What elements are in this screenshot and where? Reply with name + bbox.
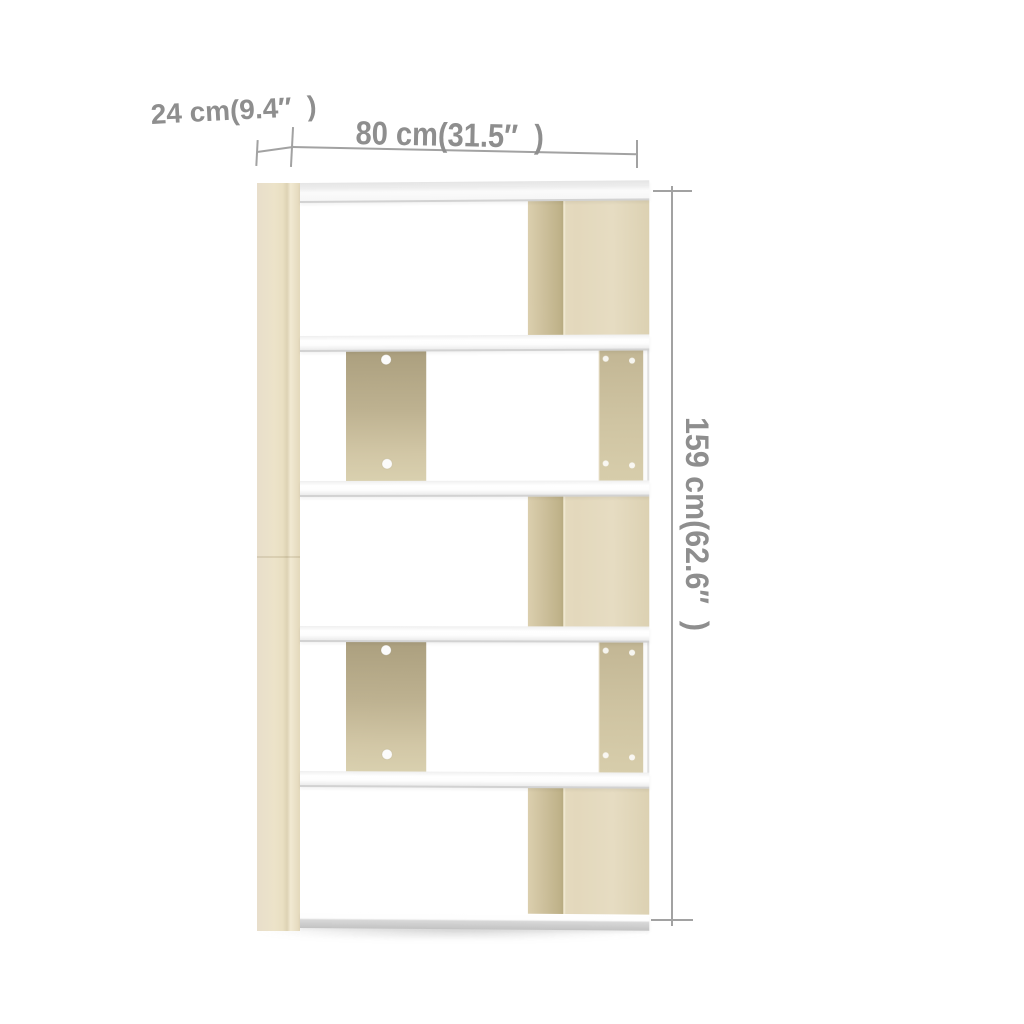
height-dimension-line (671, 186, 673, 926)
oak-block-side-face (528, 495, 565, 627)
height-dimension-label: 159 cm(62.6″ ) (681, 417, 713, 631)
screw-cap (381, 645, 391, 655)
height-dimension-tick-top (653, 190, 692, 192)
screw-cap (382, 749, 392, 759)
shelf-board-1 (300, 334, 649, 352)
oak-block-section-5 (528, 786, 649, 915)
screw-cap (603, 752, 609, 758)
side-panel-seam (257, 556, 300, 558)
screw-cap (603, 460, 609, 466)
shelf-board-3 (300, 626, 649, 643)
oak-block-side-face (528, 199, 565, 335)
shelf-board-top (300, 180, 649, 203)
oak-divider-section-4 (346, 640, 426, 771)
oak-block-side-face (528, 786, 565, 914)
bookshelf-front (300, 180, 649, 931)
product-figure: 24 cm(9.4″ ) 80 cm(31.5″ ) 159 cm(62.6″ … (0, 0, 1024, 1024)
oak-right-panel-section-4 (599, 641, 644, 773)
oak-right-panel-section-2 (599, 349, 644, 481)
side-panel-left (257, 183, 300, 931)
depth-dimension-label: 24 cm(9.4″ ) (150, 92, 317, 129)
screw-cap (629, 754, 635, 760)
width-dimension-label: 80 cm(31.5″ ) (355, 116, 544, 153)
oak-block-section-1 (528, 198, 649, 335)
oak-block-section-3 (528, 495, 649, 627)
screw-cap (629, 462, 635, 468)
height-dimension-tick-bottom (651, 919, 693, 921)
screw-cap (381, 355, 391, 365)
oak-divider-section-2 (346, 349, 426, 480)
shelf-board-2 (300, 480, 649, 497)
screw-cap (603, 648, 609, 654)
screw-cap (629, 650, 635, 656)
depth-dimension-line (257, 146, 294, 153)
screw-cap (603, 356, 609, 362)
width-dimension-tick-right (636, 140, 638, 168)
shelf-board-bottom (300, 912, 649, 931)
shelf-board-4 (300, 771, 649, 789)
screw-cap (629, 358, 635, 364)
screw-cap (382, 459, 392, 469)
